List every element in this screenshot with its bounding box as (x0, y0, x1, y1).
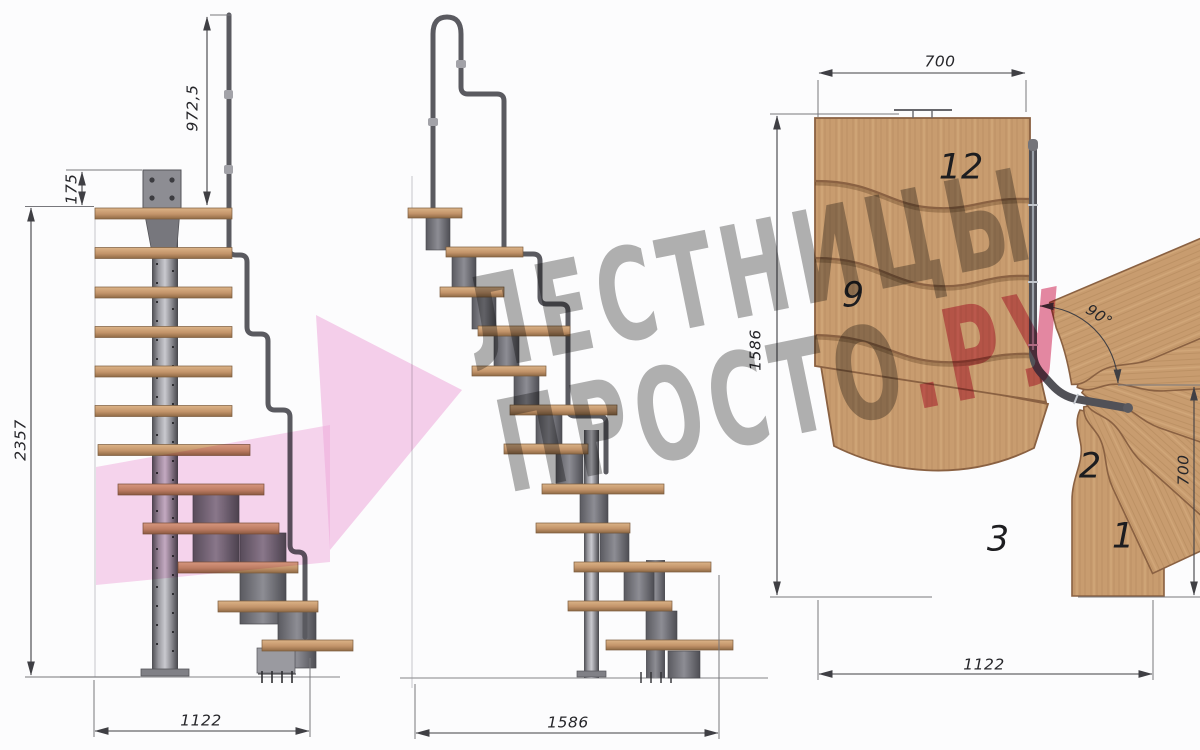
dim-label-plan-bottom: 1122 (963, 657, 1004, 673)
rail-joint (428, 118, 438, 126)
dim-label-rail-height: 972,5 (185, 85, 201, 132)
base-module (257, 648, 295, 673)
dim-label-total-height: 2357 (13, 419, 29, 460)
dim-label-plan-top: 700 (924, 54, 955, 70)
rail-joint (456, 60, 466, 68)
plan-step-number-3: 3 (987, 523, 1009, 558)
column-base-flange (141, 669, 189, 676)
dim-label-plan-right: 700 (1176, 454, 1192, 485)
dim-front-plate-offset (25, 170, 142, 207)
dim-label-plate-offset: 175 (64, 173, 80, 204)
dim-label-plan-left: 1586 (748, 329, 764, 370)
dim-label-front-width: 1122 (180, 713, 221, 729)
dim-front-total-height (25, 208, 140, 677)
plate-hole (149, 195, 154, 200)
dim-label-side-length: 1586 (547, 715, 588, 731)
plan-platform (815, 118, 1046, 402)
plate-hole (169, 195, 174, 200)
rail-joint (224, 165, 233, 174)
staircase-drawing-sheet: 972,5 175 2357 1122 1586 700 1586 700 11… (0, 0, 1200, 750)
side-steps (408, 208, 733, 678)
rail-joint (224, 90, 233, 99)
plan-wall-plate-mark (894, 110, 952, 118)
plate-hole (149, 177, 154, 182)
front-central-column (152, 214, 178, 670)
front-treads (95, 208, 353, 651)
plan-step-number-1: 1 (1112, 520, 1134, 555)
plate-hole (169, 177, 174, 182)
side-base-flange (577, 671, 606, 677)
drawing-canvas (0, 0, 1200, 750)
side-elevation-view (400, 17, 768, 688)
side-column (584, 430, 599, 678)
plan-step-number-9: 9 (842, 279, 864, 314)
plan-step-number-12: 12 (939, 151, 984, 186)
wall-mount-plate (143, 170, 181, 208)
plan-step-number-2: 2 (1079, 450, 1101, 485)
